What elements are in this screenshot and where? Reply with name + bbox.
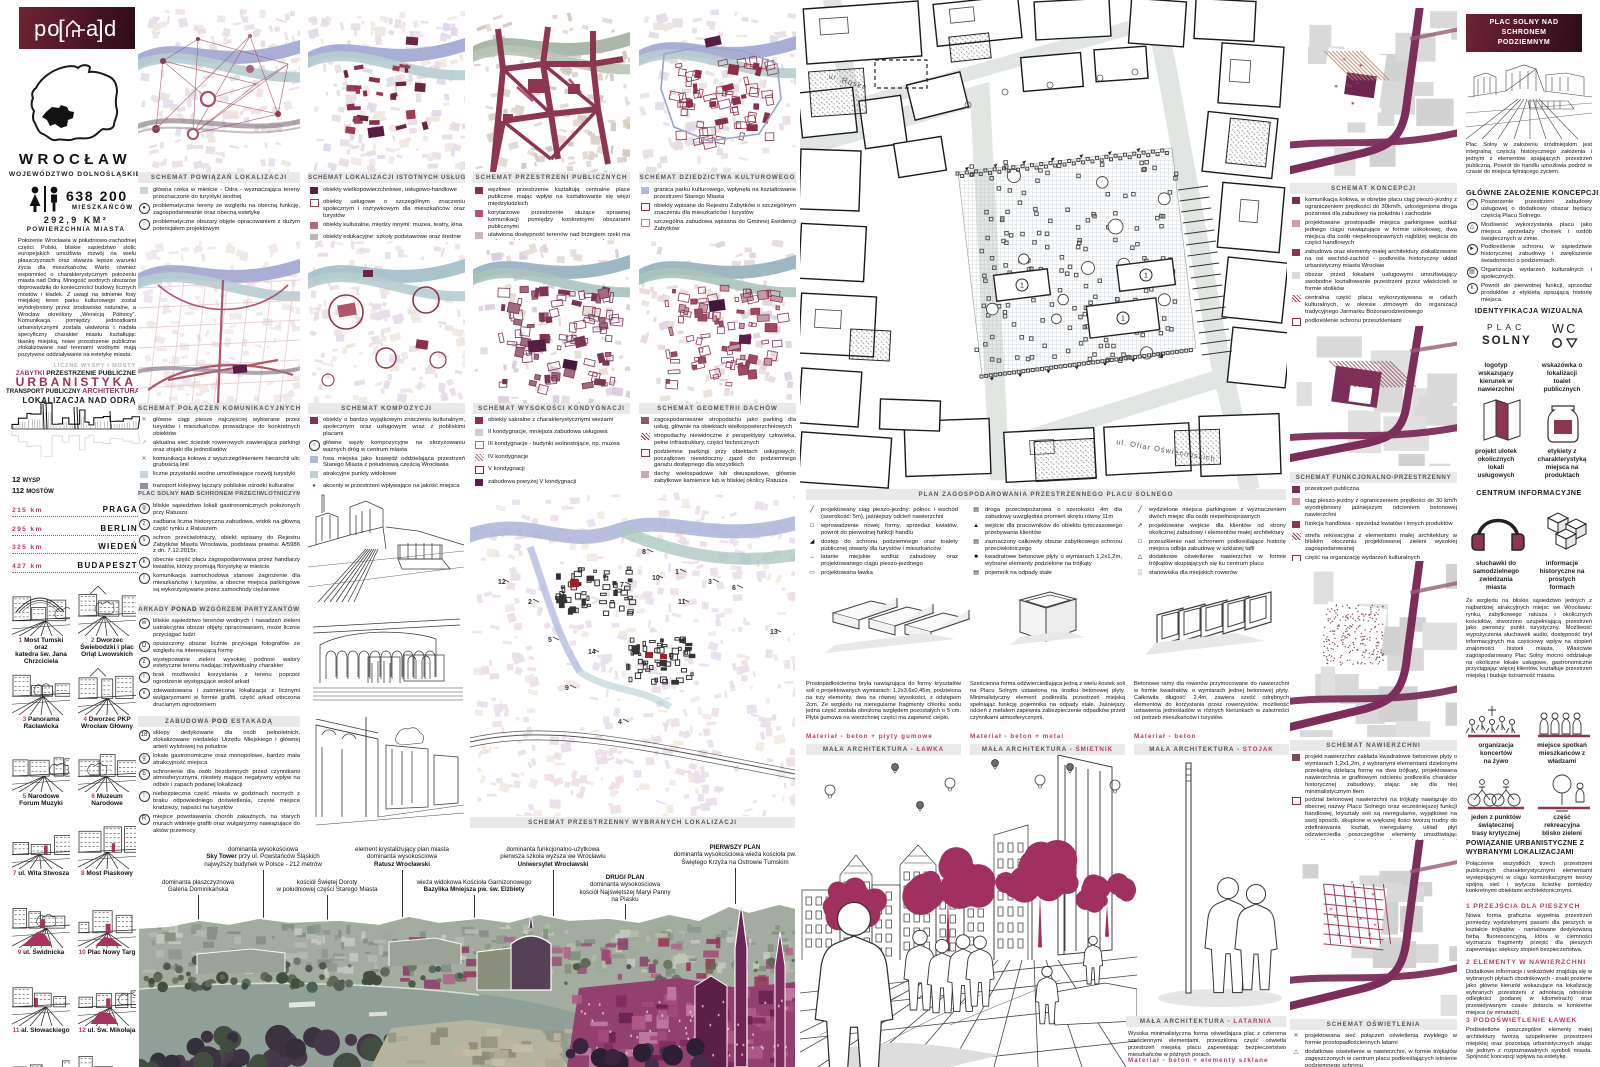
svg-text:4: 4 bbox=[618, 719, 622, 726]
svg-text:d: d bbox=[104, 16, 117, 41]
svg-text:SOLNY: SOLNY bbox=[1482, 335, 1532, 347]
svg-text:✕: ✕ bbox=[1336, 932, 1340, 938]
svg-text:✕: ✕ bbox=[1371, 892, 1375, 898]
svg-text:✕: ✕ bbox=[1353, 891, 1357, 897]
svg-text:1: 1 bbox=[1121, 316, 1125, 323]
svg-text:5: 5 bbox=[548, 637, 552, 644]
svg-text:PLAC: PLAC bbox=[1487, 322, 1525, 332]
svg-text:✕: ✕ bbox=[1350, 880, 1354, 886]
svg-text:✶: ✶ bbox=[1348, 83, 1353, 90]
svg-text:✕: ✕ bbox=[1367, 932, 1371, 938]
svg-text:✶: ✶ bbox=[1355, 81, 1360, 88]
svg-text:2: 2 bbox=[528, 599, 532, 606]
svg-text:1: 1 bbox=[1144, 273, 1148, 280]
svg-text:WC: WC bbox=[1552, 322, 1578, 336]
svg-text:po: po bbox=[34, 16, 60, 41]
svg-text:✕: ✕ bbox=[1358, 917, 1362, 923]
svg-text:✶: ✶ bbox=[1350, 100, 1355, 107]
svg-text:1: 1 bbox=[675, 569, 679, 576]
svg-text:✕: ✕ bbox=[1329, 907, 1333, 913]
svg-text:[: [ bbox=[58, 16, 66, 43]
svg-text:3: 3 bbox=[708, 579, 712, 586]
svg-text:✕: ✕ bbox=[1352, 899, 1356, 905]
svg-text:638 200: 638 200 bbox=[66, 188, 128, 204]
svg-text:✕: ✕ bbox=[1373, 923, 1377, 929]
svg-text:1: 1 bbox=[1020, 283, 1024, 290]
svg-text:6: 6 bbox=[732, 585, 736, 592]
svg-text:✶: ✶ bbox=[1333, 84, 1338, 91]
svg-text:MIESZKAŃCÓW: MIESZKAŃCÓW bbox=[72, 203, 133, 211]
svg-text:8: 8 bbox=[642, 549, 646, 556]
svg-text:9: 9 bbox=[565, 685, 569, 692]
svg-text:✕: ✕ bbox=[1333, 915, 1337, 921]
svg-text:7: 7 bbox=[620, 582, 624, 589]
